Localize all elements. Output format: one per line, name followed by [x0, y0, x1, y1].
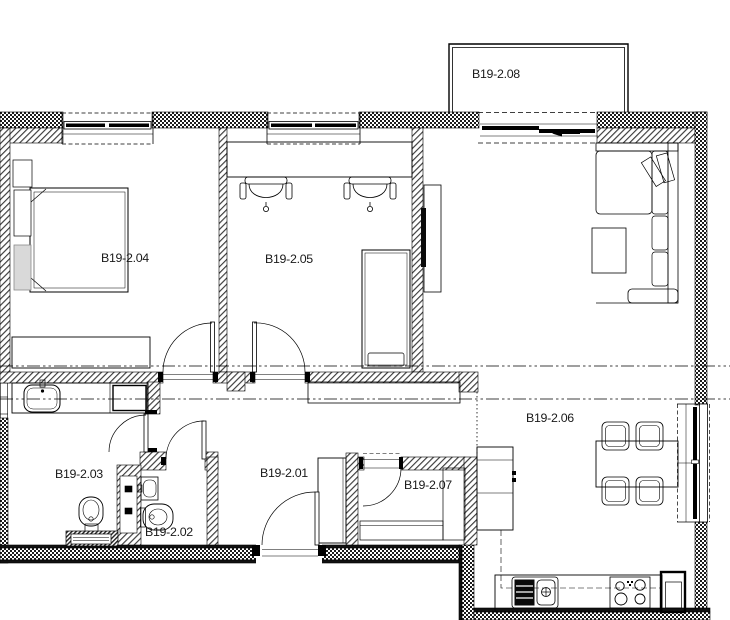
corridor-pier: [227, 372, 245, 391]
room-label-bathroom: B19-2.03: [55, 467, 103, 481]
floor-plan-svg: B19-2.01 B19-2.02 B19-2.03 B19-2.04 B19-…: [0, 0, 730, 620]
wc-wall-right: [207, 457, 218, 545]
room-label-hall: B19-2.01: [260, 466, 308, 480]
bottom-wall-edge: [0, 560, 460, 563]
washing-machine: [66, 531, 118, 546]
window-glazing: [693, 407, 697, 460]
bathroom-wall: [147, 382, 160, 414]
sliding-panel: [482, 126, 539, 130]
room-label-living: B19-2.06: [526, 411, 574, 425]
window-glazing: [693, 464, 697, 519]
room-label-office: B19-2.05: [265, 252, 313, 266]
wall-bedroom-office: [219, 128, 227, 372]
right-wall-lower: [695, 522, 707, 620]
corridor-pier: [459, 372, 478, 392]
window-glazing: [109, 124, 149, 128]
room-label-wc: B19-2.02: [145, 525, 193, 539]
bed-side-table: [14, 245, 31, 290]
sliding-panel: [539, 129, 595, 133]
step-wall-edge: [459, 545, 462, 620]
top-wall-pier: [597, 128, 695, 143]
storage-wall-right: [464, 457, 477, 545]
shaft-fixture: [125, 508, 132, 514]
window-mullion: [692, 460, 699, 464]
kitchen-bottom-wall: [474, 612, 710, 620]
fridge-handle: [512, 471, 516, 475]
corridor-wall: [0, 372, 163, 383]
window-glazing: [271, 124, 312, 128]
floor-plan: B19-2.01 B19-2.02 B19-2.03 B19-2.04 B19-…: [0, 0, 730, 620]
bed-side-table: [14, 190, 31, 236]
window-glazing: [315, 124, 356, 128]
left-wall-lower: [0, 418, 8, 563]
left-wall-upper: [0, 128, 10, 383]
corridor-wall: [305, 372, 460, 383]
window-glazing: [66, 124, 105, 128]
room-label-balcony: B19-2.08: [472, 67, 520, 81]
step-wall: [462, 545, 474, 620]
right-wall-upper: [695, 112, 707, 405]
bottom-wall: [0, 548, 460, 560]
top-wall-segment: [597, 112, 707, 128]
room-label-storage: B19-2.07: [404, 478, 452, 492]
shaft-opening: [120, 476, 137, 533]
fridge-handle: [512, 478, 516, 482]
top-wall-segment: [152, 112, 268, 128]
window-frame: [700, 404, 708, 522]
shaft-fixture: [125, 486, 132, 492]
room-label-bedroom: B19-2.04: [101, 251, 149, 265]
tv-screen: [421, 208, 426, 267]
storage-wall-left: [346, 453, 358, 545]
top-wall-segment: [359, 112, 479, 128]
top-wall-segment: [0, 112, 63, 128]
